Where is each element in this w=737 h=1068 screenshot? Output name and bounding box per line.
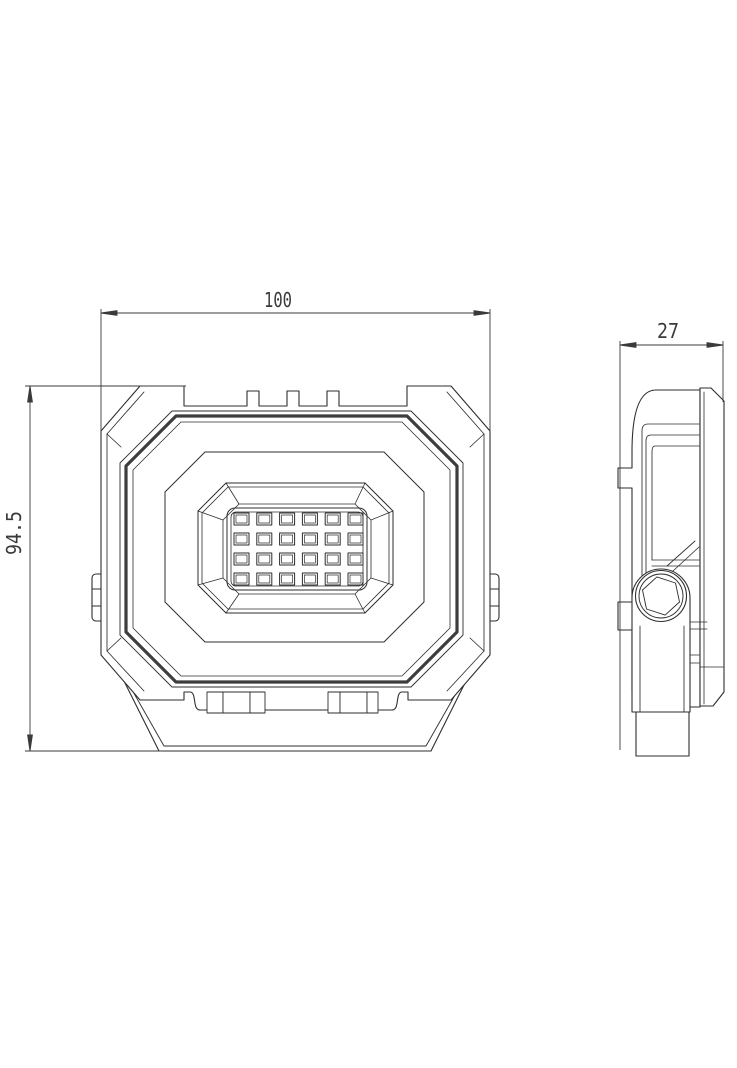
- arrowhead-right: [474, 311, 490, 316]
- arrowhead-left: [101, 311, 117, 316]
- bracket-stem: [636, 712, 689, 756]
- arrowhead-top: [28, 386, 33, 402]
- front-view: [92, 386, 499, 751]
- pivot-knob: [636, 571, 687, 622]
- dimension-label-depth: 27: [657, 319, 679, 343]
- arrowhead-bottom: [28, 735, 33, 751]
- dimension-label-height: 94.5: [2, 511, 26, 555]
- dimension-label-width: 100: [264, 288, 292, 312]
- drawing-sheet: 100 94.5 27: [0, 0, 737, 1068]
- rear-cover: [700, 388, 724, 706]
- arrowhead-left: [620, 343, 636, 348]
- arrowhead-right: [707, 343, 723, 348]
- side-view: [618, 388, 724, 756]
- technical-drawing-canvas: 100 94.5 27: [0, 0, 737, 1068]
